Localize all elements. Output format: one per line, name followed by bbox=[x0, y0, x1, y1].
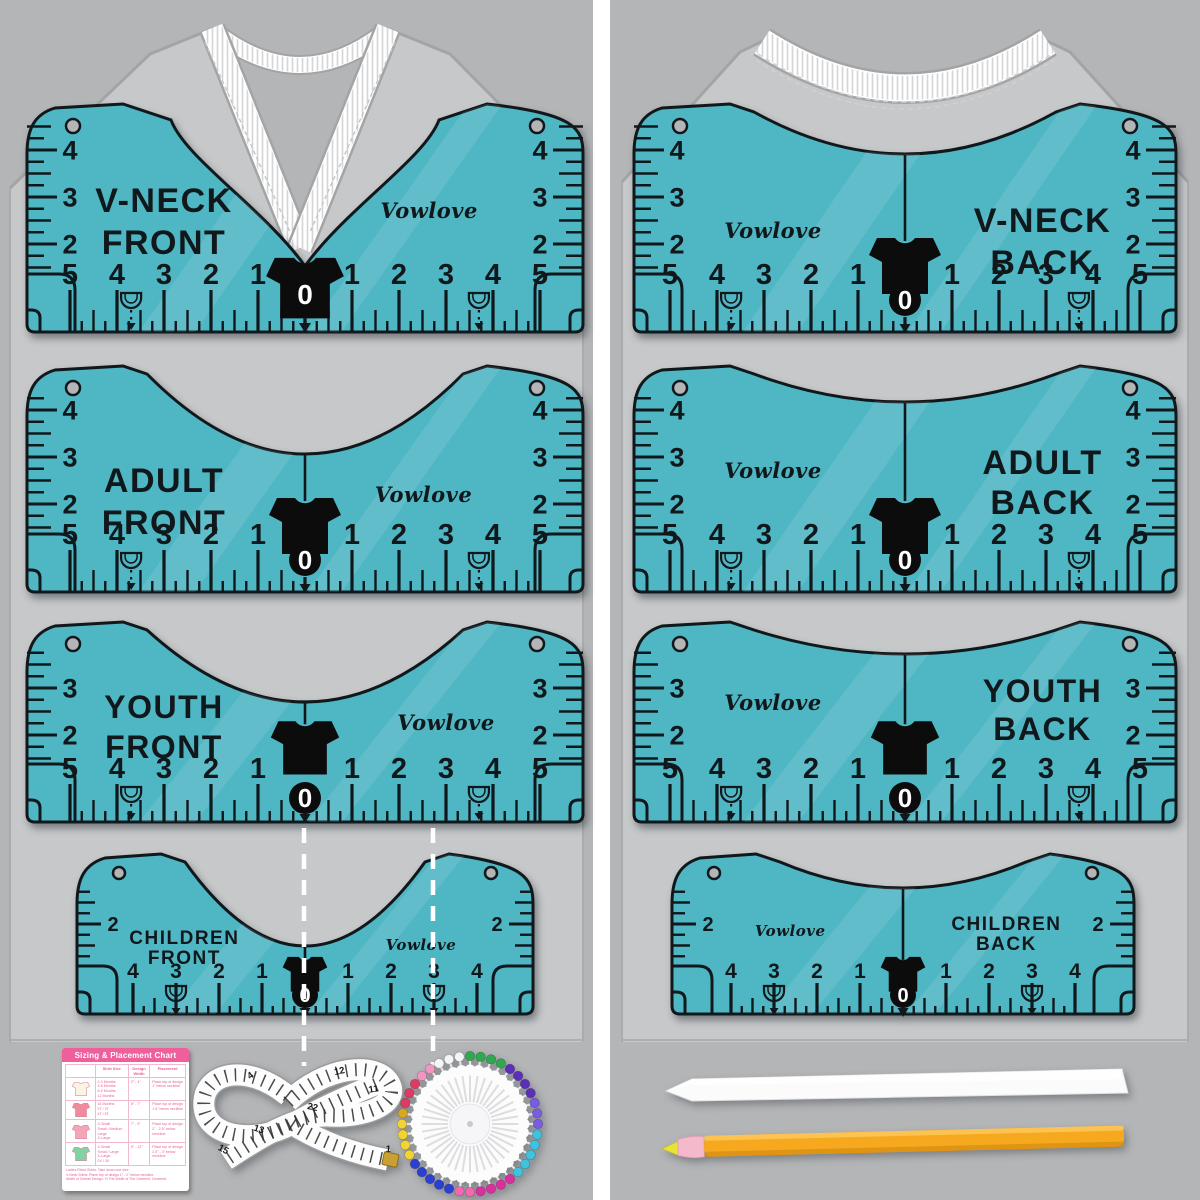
hang-hole bbox=[1123, 119, 1137, 133]
svg-text:5: 5 bbox=[662, 753, 678, 785]
ruler-title: FRONT bbox=[105, 729, 223, 765]
svg-text:1: 1 bbox=[940, 960, 952, 983]
hang-hole bbox=[1123, 637, 1137, 651]
svg-text:2: 2 bbox=[107, 914, 118, 936]
hang-hole bbox=[673, 119, 687, 133]
sizing-chart-row: X-SmallSmall / LargeX-Large2X / 3X9" - 1… bbox=[66, 1142, 185, 1165]
pin-head bbox=[410, 1159, 420, 1169]
pin-head bbox=[397, 1119, 407, 1129]
svg-text:2: 2 bbox=[803, 259, 819, 291]
svg-text:1: 1 bbox=[944, 753, 960, 785]
svg-text:3: 3 bbox=[438, 259, 454, 291]
pin-head bbox=[532, 1109, 542, 1119]
svg-text:4: 4 bbox=[1085, 753, 1101, 785]
hang-hole bbox=[708, 867, 720, 879]
svg-text:4: 4 bbox=[485, 519, 501, 551]
ruler-children-front: 22432112340CHILDRENFRONTVowlove bbox=[61, 836, 549, 1030]
brand-logo: Vowlove bbox=[755, 922, 826, 940]
svg-text:3: 3 bbox=[1038, 519, 1054, 551]
svg-text:2: 2 bbox=[991, 519, 1007, 551]
ruler-adult-front: 44332254321123450ADULTFRONTVowlove bbox=[11, 348, 599, 608]
sizing-chart-row: X-SmallSmall / MediumLargeX-Large7" - 9"… bbox=[66, 1119, 185, 1142]
svg-text:4: 4 bbox=[669, 396, 684, 426]
pin-head bbox=[496, 1059, 506, 1069]
svg-text:0: 0 bbox=[299, 985, 310, 1007]
svg-text:4: 4 bbox=[127, 960, 139, 983]
left-panel: 44332254321123450V-NECKFRONTVowlove44332… bbox=[0, 0, 593, 1200]
brand-logo: Vowlove bbox=[380, 198, 478, 223]
pin-head bbox=[496, 1180, 506, 1190]
ruler-youth-front: 332254321123450YOUTHFRONTVowlove bbox=[11, 604, 599, 838]
svg-text:3: 3 bbox=[438, 753, 454, 785]
ruler-youth-back: 332254321123450YOUTHBACKVowlove bbox=[618, 604, 1192, 838]
sizing-chart-col-design-width: Design Width bbox=[128, 1065, 149, 1077]
svg-text:2: 2 bbox=[391, 753, 407, 785]
pin-head bbox=[505, 1174, 515, 1184]
svg-text:2: 2 bbox=[203, 259, 219, 291]
brand-logo: Vowlove bbox=[724, 458, 822, 483]
svg-text:1: 1 bbox=[250, 753, 266, 785]
pin-wheel bbox=[394, 1046, 546, 1198]
pin-head bbox=[405, 1088, 415, 1098]
ruler-title: CHILDREN bbox=[129, 928, 239, 949]
hang-hole bbox=[485, 867, 497, 879]
svg-text:4: 4 bbox=[1125, 396, 1140, 426]
svg-text:3: 3 bbox=[768, 960, 780, 983]
svg-text:3: 3 bbox=[1125, 183, 1140, 213]
svg-text:0: 0 bbox=[298, 783, 312, 813]
pin-head bbox=[520, 1159, 530, 1169]
pin-head bbox=[530, 1140, 540, 1150]
hang-hole bbox=[673, 381, 687, 395]
pin-head bbox=[398, 1130, 408, 1140]
svg-text:3: 3 bbox=[756, 519, 772, 551]
ruler-title: BACK bbox=[976, 934, 1037, 955]
svg-text:1: 1 bbox=[850, 753, 866, 785]
svg-text:2: 2 bbox=[803, 519, 819, 551]
pin-head bbox=[505, 1064, 515, 1074]
ruler-title: V-NECK bbox=[95, 182, 232, 220]
svg-text:3: 3 bbox=[1125, 443, 1140, 473]
svg-text:2: 2 bbox=[62, 230, 77, 260]
brand-logo: Vowlove bbox=[724, 218, 822, 243]
svg-text:2: 2 bbox=[491, 914, 502, 936]
svg-text:1: 1 bbox=[250, 519, 266, 551]
shirt-icon bbox=[72, 1081, 90, 1097]
svg-text:2: 2 bbox=[669, 230, 684, 260]
sizing-chart-icon-col bbox=[66, 1065, 95, 1077]
pin-head bbox=[526, 1150, 536, 1160]
svg-text:1: 1 bbox=[344, 519, 360, 551]
tape-number: 12 bbox=[333, 1065, 346, 1078]
hang-hole bbox=[113, 867, 125, 879]
hang-hole bbox=[1123, 381, 1137, 395]
svg-text:1: 1 bbox=[854, 960, 866, 983]
svg-text:3: 3 bbox=[532, 183, 547, 213]
zero-label: 0 bbox=[297, 279, 313, 310]
pin-head bbox=[425, 1174, 435, 1184]
measuring-tape: 412112213151 bbox=[192, 1044, 404, 1186]
svg-text:2: 2 bbox=[385, 960, 397, 983]
svg-text:4: 4 bbox=[669, 136, 684, 166]
svg-text:3: 3 bbox=[1026, 960, 1038, 983]
pin-head bbox=[476, 1186, 486, 1196]
right-panel: 44332254321123450V-NECKBACKVowlove443322… bbox=[610, 0, 1200, 1200]
brand-logo: Vowlove bbox=[375, 482, 473, 507]
svg-text:4: 4 bbox=[532, 136, 547, 166]
svg-text:2: 2 bbox=[532, 230, 547, 260]
svg-text:4: 4 bbox=[1069, 960, 1081, 983]
ruler-children-back: 22432112340CHILDRENBACKVowlove bbox=[656, 836, 1150, 1030]
svg-text:0: 0 bbox=[897, 985, 908, 1007]
svg-text:2: 2 bbox=[1125, 490, 1140, 520]
ruler-v-neck-front: 44332254321123450V-NECKFRONTVowlove bbox=[11, 86, 599, 348]
hang-hole bbox=[530, 119, 544, 133]
svg-text:4: 4 bbox=[709, 519, 725, 551]
pin-head bbox=[434, 1180, 444, 1190]
pin-head bbox=[405, 1150, 415, 1160]
svg-text:2: 2 bbox=[391, 259, 407, 291]
svg-text:2: 2 bbox=[669, 721, 684, 751]
svg-text:3: 3 bbox=[532, 443, 547, 473]
svg-text:2: 2 bbox=[991, 753, 1007, 785]
svg-text:1: 1 bbox=[256, 960, 268, 983]
ruler-title: FRONT bbox=[102, 504, 227, 542]
svg-text:4: 4 bbox=[109, 259, 125, 291]
svg-text:4: 4 bbox=[471, 960, 483, 983]
svg-text:3: 3 bbox=[669, 183, 684, 213]
svg-text:0: 0 bbox=[298, 545, 312, 575]
svg-text:3: 3 bbox=[1125, 674, 1140, 704]
ruler-title: ADULT bbox=[104, 462, 224, 500]
pin-head bbox=[533, 1119, 543, 1129]
hang-hole bbox=[66, 637, 80, 651]
sizing-chart-footnotes: Ladies Fitted Shirts: Take down one size… bbox=[62, 1167, 189, 1183]
sizing-chart-table: Shirt Size Design Width Placement 0-3 Mo… bbox=[65, 1064, 186, 1166]
hang-hole bbox=[1086, 867, 1098, 879]
svg-text:2: 2 bbox=[669, 490, 684, 520]
svg-text:3: 3 bbox=[156, 259, 172, 291]
ruler-title: V-NECK bbox=[974, 202, 1111, 240]
ruler-title: BACK bbox=[990, 244, 1094, 282]
ruler-adult-back: 44332254321123450ADULTBACKVowlove bbox=[618, 348, 1192, 608]
svg-text:4: 4 bbox=[532, 396, 547, 426]
pin-head bbox=[444, 1055, 454, 1065]
svg-text:2: 2 bbox=[62, 490, 77, 520]
svg-text:4: 4 bbox=[62, 136, 77, 166]
svg-text:0: 0 bbox=[898, 285, 912, 315]
white-marking-pencil bbox=[666, 1069, 1128, 1101]
svg-text:4: 4 bbox=[709, 753, 725, 785]
pin-head bbox=[434, 1059, 444, 1069]
ruler-title: BACK bbox=[993, 711, 1091, 747]
svg-text:2: 2 bbox=[803, 753, 819, 785]
pin-head bbox=[455, 1052, 465, 1062]
svg-text:3: 3 bbox=[756, 753, 772, 785]
svg-text:4: 4 bbox=[709, 259, 725, 291]
hang-hole bbox=[673, 637, 687, 651]
svg-text:5: 5 bbox=[1132, 753, 1148, 785]
sizing-chart-col-placement: Placement bbox=[149, 1065, 185, 1077]
pin-head bbox=[532, 1130, 542, 1140]
ruler-title: FRONT bbox=[102, 224, 227, 262]
pin-head bbox=[530, 1098, 540, 1108]
marking-tools bbox=[650, 1055, 1150, 1175]
svg-text:3: 3 bbox=[669, 674, 684, 704]
svg-text:4: 4 bbox=[62, 396, 77, 426]
svg-text:2: 2 bbox=[702, 914, 713, 936]
ruler-title: ADULT bbox=[982, 444, 1102, 482]
hang-hole bbox=[66, 119, 80, 133]
ruler-title: BACK bbox=[990, 484, 1094, 522]
svg-text:2: 2 bbox=[391, 519, 407, 551]
svg-text:4: 4 bbox=[725, 960, 737, 983]
pin-head bbox=[526, 1088, 536, 1098]
svg-text:2: 2 bbox=[532, 721, 547, 751]
tape-number: 22 bbox=[306, 1101, 319, 1114]
shirt-icon bbox=[72, 1102, 90, 1118]
pin-head bbox=[401, 1140, 411, 1150]
pin-head bbox=[476, 1052, 486, 1062]
svg-text:1: 1 bbox=[344, 259, 360, 291]
svg-text:2: 2 bbox=[62, 721, 77, 751]
sizing-chart-row: 18 Months2T / 3T4T / 5T5" - 7"Place top … bbox=[66, 1100, 185, 1120]
ruler-title: YOUTH bbox=[104, 689, 224, 725]
hang-hole bbox=[530, 637, 544, 651]
svg-text:1: 1 bbox=[850, 259, 866, 291]
svg-text:0: 0 bbox=[898, 545, 912, 575]
svg-text:3: 3 bbox=[438, 519, 454, 551]
svg-text:1: 1 bbox=[250, 259, 266, 291]
svg-text:3: 3 bbox=[756, 259, 772, 291]
pin-head bbox=[444, 1184, 454, 1194]
pin-head bbox=[425, 1064, 435, 1074]
svg-text:3: 3 bbox=[62, 443, 77, 473]
sizing-chart-card: Sizing & Placement Chart Shirt Size Desi… bbox=[62, 1048, 189, 1191]
pin-head bbox=[417, 1071, 427, 1081]
svg-text:4: 4 bbox=[485, 753, 501, 785]
svg-text:3: 3 bbox=[669, 443, 684, 473]
yellow-marking-pencil bbox=[662, 1126, 1124, 1159]
svg-text:0: 0 bbox=[898, 783, 912, 813]
pin-head bbox=[417, 1167, 427, 1177]
svg-text:2: 2 bbox=[983, 960, 995, 983]
svg-text:3: 3 bbox=[1038, 753, 1054, 785]
svg-text:1: 1 bbox=[344, 753, 360, 785]
svg-text:3: 3 bbox=[62, 183, 77, 213]
sizing-chart-header-row: Shirt Size Design Width Placement bbox=[66, 1065, 185, 1077]
ruler-title: CHILDREN bbox=[951, 914, 1061, 935]
brand-logo: Vowlove bbox=[386, 936, 457, 954]
svg-text:1: 1 bbox=[850, 519, 866, 551]
pin-head bbox=[398, 1109, 408, 1119]
svg-text:1: 1 bbox=[944, 259, 960, 291]
shirt-icon bbox=[72, 1124, 90, 1140]
svg-text:4: 4 bbox=[485, 259, 501, 291]
ruler-title: YOUTH bbox=[983, 673, 1103, 709]
svg-text:1: 1 bbox=[944, 519, 960, 551]
svg-text:2: 2 bbox=[1092, 914, 1103, 936]
pin-head bbox=[455, 1186, 465, 1196]
svg-text:1: 1 bbox=[342, 960, 354, 983]
product-image: 44332254321123450V-NECKFRONTVowlove44332… bbox=[0, 0, 1200, 1200]
pin-head bbox=[401, 1098, 411, 1108]
sizing-chart-title: Sizing & Placement Chart bbox=[62, 1048, 189, 1062]
pin-head bbox=[410, 1079, 420, 1089]
svg-text:2: 2 bbox=[1125, 721, 1140, 751]
svg-text:3: 3 bbox=[62, 674, 77, 704]
hang-hole bbox=[530, 381, 544, 395]
pin-head bbox=[465, 1051, 475, 1061]
svg-text:4: 4 bbox=[1125, 136, 1140, 166]
ruler-title: FRONT bbox=[148, 948, 221, 969]
pin-head bbox=[513, 1167, 523, 1177]
pin-head bbox=[486, 1184, 496, 1194]
hang-hole bbox=[66, 381, 80, 395]
pin-head bbox=[520, 1079, 530, 1089]
ruler-v-neck-back: 44332254321123450V-NECKBACKVowlove bbox=[618, 86, 1192, 348]
sizing-chart-row: 0-3 Months3-6 Months6-9 Months12 Months3… bbox=[66, 1077, 185, 1100]
svg-text:4: 4 bbox=[1085, 519, 1101, 551]
brand-logo: Vowlove bbox=[397, 710, 495, 735]
svg-text:3: 3 bbox=[532, 674, 547, 704]
shirt-icon bbox=[72, 1146, 90, 1162]
svg-text:2: 2 bbox=[532, 490, 547, 520]
pin-head bbox=[486, 1055, 496, 1065]
pin-head bbox=[465, 1187, 475, 1197]
svg-text:2: 2 bbox=[1125, 230, 1140, 260]
svg-text:3: 3 bbox=[428, 960, 440, 983]
sizing-chart-col-shirt-size: Shirt Size bbox=[95, 1065, 128, 1077]
brand-logo: Vowlove bbox=[724, 690, 822, 715]
svg-text:2: 2 bbox=[811, 960, 823, 983]
pin-head bbox=[513, 1071, 523, 1081]
